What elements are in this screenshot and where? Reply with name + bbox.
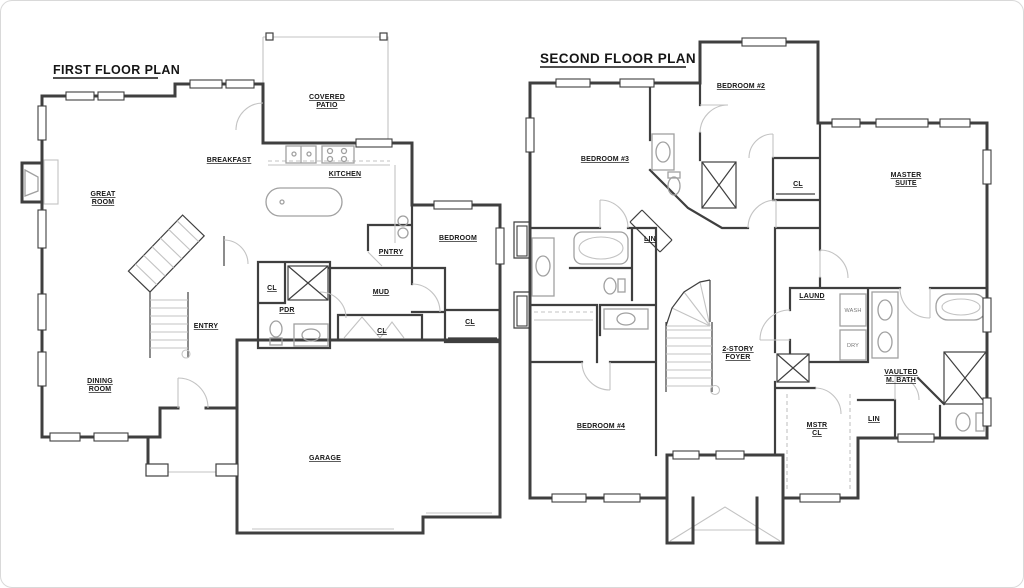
room-label-powder-room: PDR xyxy=(279,307,294,314)
first-floor-front-entry-walls xyxy=(148,408,237,437)
second-floor-plan-title: SECOND FLOOR PLAN xyxy=(540,51,696,66)
room-label-closet-hall: CL xyxy=(267,285,277,292)
staircase-second-floor xyxy=(666,280,720,395)
room-label-bedroom-3: BEDROOM #3 xyxy=(581,156,629,163)
room-label-bedroom-2: BEDROOM #2 xyxy=(717,83,765,90)
room-label-laundry: LAUND xyxy=(799,293,825,300)
porch-roof-lines xyxy=(670,507,780,541)
room-label-great-room: GREATROOM xyxy=(91,191,117,206)
linen-closet-diagonal xyxy=(630,210,672,252)
second-floor-windows xyxy=(517,38,991,502)
floor-plan-canvas: FIRST FLOOR PLAN GREATROOMBREAKFASTCOVER… xyxy=(0,0,1024,588)
kitchen-island xyxy=(266,188,342,216)
master-vanity xyxy=(872,292,898,358)
staircase-first-floor xyxy=(128,215,248,358)
chase-x xyxy=(777,354,809,382)
first-floor-plan-title: FIRST FLOOR PLAN xyxy=(53,63,180,77)
appliance-label-washer: WASH xyxy=(844,308,861,314)
room-label-mud: MUD xyxy=(373,289,390,296)
room-label-bedroom-4: BEDROOM #4 xyxy=(577,423,625,430)
room-label-linen-hall: LIN xyxy=(644,236,656,243)
room-label-bedroom: BEDROOM xyxy=(439,235,477,242)
hall-bath-toilet xyxy=(604,278,616,294)
first-floor-room-labels: GREATROOMBREAKFASTCOVEREDPATIOKITCHENPNT… xyxy=(87,94,477,462)
porch-step-right xyxy=(216,464,238,476)
room-label-vaulted-master-bath: VAULTEDM. BATH xyxy=(884,369,917,384)
room-label-master-closet: MSTRCL xyxy=(807,422,828,437)
room-label-linen-master: LIN xyxy=(868,416,880,423)
entry-closet-x xyxy=(288,266,328,300)
room-label-kitchen: KITCHEN xyxy=(329,171,362,178)
second-floor-exterior-left xyxy=(530,83,667,498)
room-label-breakfast: BREAKFAST xyxy=(207,157,252,164)
room-label-two-story-foyer: 2-STORYFOYER xyxy=(722,346,753,361)
room-label-dining-room: DININGROOM xyxy=(87,378,113,393)
garden-tub xyxy=(936,294,986,320)
first-floor-exterior-walls xyxy=(42,84,500,533)
firebox xyxy=(25,170,38,196)
room-label-entry: ENTRY xyxy=(194,323,219,330)
powder-room-fixtures xyxy=(270,321,328,346)
second-floor-door-arcs xyxy=(582,105,930,414)
second-floor-room-labels: BEDROOM #3BEDROOM #2MASTERSUITECLLINLAUN… xyxy=(577,83,922,437)
second-floor-plan: SECOND FLOOR PLAN BEDROOM #3BEDROOM #2MA… xyxy=(514,38,991,543)
fireplace-hearth xyxy=(44,160,58,204)
covered-patio-outline xyxy=(263,33,388,143)
jack-and-jill-closet-x xyxy=(702,162,736,208)
appliance-label-dryer: DRY xyxy=(847,343,859,349)
room-label-garage: GARAGE xyxy=(309,455,341,462)
room-label-pantry: PNTRY xyxy=(379,249,404,256)
first-floor-plan: FIRST FLOOR PLAN GREATROOMBREAKFASTCOVER… xyxy=(22,33,504,533)
room-label-master-suite: MASTERSUITE xyxy=(891,172,922,187)
porch-step-left xyxy=(146,464,168,476)
room-label-closet-bedroom: CL xyxy=(465,319,475,326)
room-label-closet-mud: CL xyxy=(377,328,387,335)
first-floor-exterior-left xyxy=(42,96,148,472)
master-shower-x xyxy=(944,352,986,404)
garage-door-lines xyxy=(148,472,492,529)
kitchen-fixtures xyxy=(266,146,408,243)
closet-shelf-dashes xyxy=(534,312,850,492)
room-label-closet-bedroom-2: CL xyxy=(793,181,803,188)
master-toilet xyxy=(956,413,970,431)
room-label-covered-patio: COVEREDPATIO xyxy=(309,94,345,109)
